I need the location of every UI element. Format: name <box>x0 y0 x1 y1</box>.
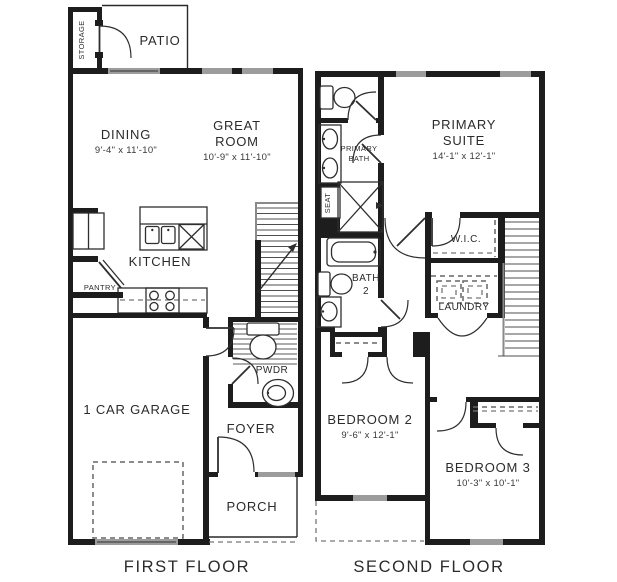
powder-room-door <box>232 358 258 384</box>
stair-treads <box>257 208 298 313</box>
primary-suite-window <box>500 71 531 77</box>
front-door <box>218 437 254 473</box>
double-vanity <box>319 125 341 183</box>
dining-dims: 9'-4" x 11'-10" <box>95 145 157 156</box>
toilet <box>318 272 352 296</box>
toilet <box>320 86 355 109</box>
shower <box>338 182 383 232</box>
pantry-label: PANTRY <box>84 283 116 292</box>
toilet <box>247 323 279 359</box>
floor-plan: STORAGE PATIO DINING 9'-4" x 11'-10" GRE… <box>0 0 617 582</box>
kitchen-counter <box>118 288 207 313</box>
pedestal-sink <box>263 380 294 407</box>
bedroom3-label: BEDROOM 3 <box>445 460 530 475</box>
foyer-window <box>258 472 295 477</box>
primary-suite-label-1: PRIMARY <box>432 117 497 132</box>
dining-label: DINING <box>101 127 151 142</box>
laundry-label: LAUNDRY <box>438 302 489 313</box>
primary-bath-label-2: BATH <box>348 154 369 163</box>
floor-plan-canvas: STORAGE PATIO DINING 9'-4" x 11'-10" GRE… <box>0 0 617 582</box>
primary-suite-door <box>385 218 425 258</box>
foyer-label: FOYER <box>227 421 276 436</box>
refrigerator <box>73 208 104 249</box>
bath2-door <box>381 300 408 327</box>
storage-label: STORAGE <box>77 20 86 59</box>
bedroom2-window <box>353 495 387 501</box>
bedroom3-dims: 10'-3" x 10'-1" <box>457 478 520 489</box>
great-room-dims: 10'-9" x 11'-10" <box>203 152 271 163</box>
bedroom3-closet-door <box>496 428 523 455</box>
kitchen-island <box>140 207 207 250</box>
patio-label: PATIO <box>139 33 180 48</box>
first-floor-title: FIRST FLOOR <box>124 558 250 576</box>
kitchen-label: KITCHEN <box>129 254 192 269</box>
primary-suite-label-2: SUITE <box>443 133 485 148</box>
wic-label: W.I.C. <box>451 234 481 245</box>
porch-label: PORCH <box>227 499 278 514</box>
bedroom3-window <box>470 539 503 545</box>
garage-area <box>93 462 183 538</box>
laundry-doors <box>438 318 487 336</box>
great-room-label-2: ROOM <box>215 134 259 149</box>
great-room-window <box>202 68 232 74</box>
garage-label: 1 CAR GARAGE <box>83 402 190 417</box>
bedroom2-dims: 9'-6" x 12'-1" <box>341 430 398 441</box>
second-floor-title: SECOND FLOOR <box>353 558 504 576</box>
bath2-label-2: 2 <box>363 286 369 297</box>
primary-bath-label-1: PRIMARY <box>341 144 378 153</box>
bath2-label-1: BATH <box>352 273 380 284</box>
open-below-outline <box>316 501 424 541</box>
washer-dryer <box>437 281 487 303</box>
storage-door <box>95 20 131 58</box>
bedroom2-label: BEDROOM 2 <box>327 412 412 427</box>
bedroom2-door <box>387 357 413 383</box>
pwdr-label: PWDR <box>256 365 289 376</box>
great-room-window <box>242 68 273 74</box>
stairs-first-floor <box>255 203 298 313</box>
dishwasher <box>179 225 204 250</box>
second-floor: PRIMARY SUITE 14'-1" x 12'-1" PRIMARY BA… <box>315 71 545 576</box>
bathtub <box>327 238 380 266</box>
seat-label: SEAT <box>323 193 332 214</box>
first-floor: STORAGE PATIO DINING 9'-4" x 11'-10" GRE… <box>68 5 303 576</box>
bedroom3-door <box>437 402 466 431</box>
bedroom2-closet-door <box>342 357 368 383</box>
primary-suite-dims: 14'-1" x 12'-1" <box>433 151 496 162</box>
great-room-label-1: GREAT <box>213 118 261 133</box>
car-pad-outline <box>93 462 183 538</box>
primary-suite-window <box>396 71 426 77</box>
